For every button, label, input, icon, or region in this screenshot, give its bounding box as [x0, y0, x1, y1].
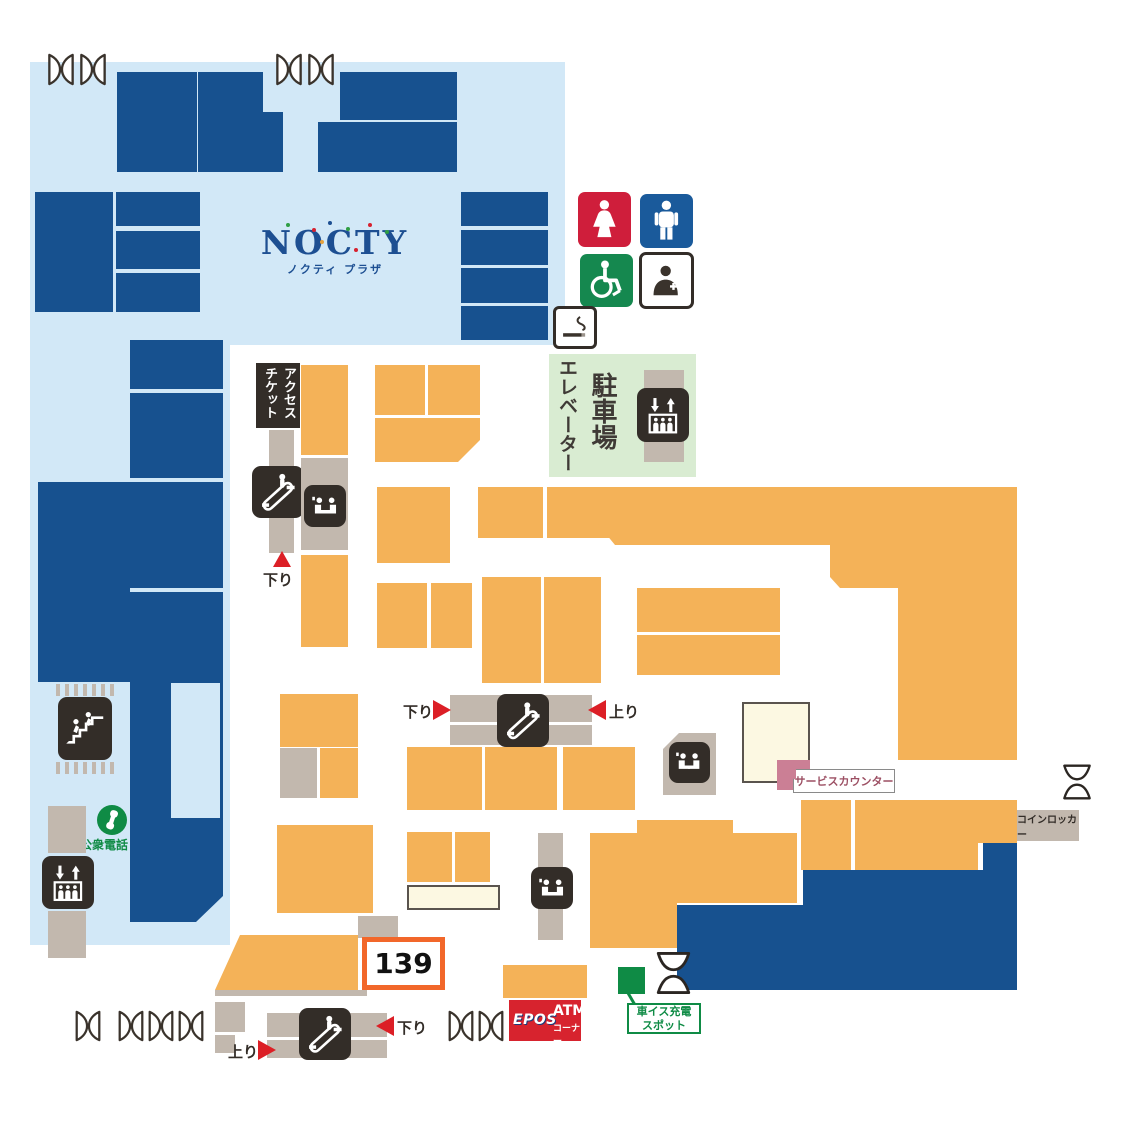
service-counter-tag: サービスカウンター [793, 769, 895, 793]
atm-label: ATM [553, 1003, 586, 1019]
door-icon [655, 950, 692, 996]
wheelchair-charging-tag: 車イス充電 スポット [627, 1003, 701, 1034]
wheelchair-charging-marker [618, 967, 645, 994]
up-direction-arrow [588, 700, 606, 720]
wheelchair-charging-label-1: 車イス充電 [629, 1005, 699, 1019]
shop-block[interactable] [301, 555, 348, 647]
elevator-shaft [48, 806, 86, 853]
shop-block[interactable] [478, 487, 543, 538]
shop-block[interactable] [428, 365, 480, 415]
stairs-landing-hatch [56, 762, 114, 774]
shop-block[interactable] [801, 800, 851, 870]
parking-elevator-area: エレベーター 駐車場 [549, 354, 696, 477]
shop-block[interactable] [377, 583, 427, 648]
shop-block[interactable] [377, 487, 450, 563]
shop-block[interactable] [320, 748, 358, 798]
escalator-up-label: 上り [609, 701, 639, 722]
shop-block[interactable] [637, 588, 780, 632]
service-counter-block [407, 885, 500, 910]
shop-block[interactable] [116, 192, 200, 226]
shop-block[interactable] [461, 306, 548, 340]
shop-block[interactable] [485, 747, 557, 810]
logo-subtitle: ノクティ プラザ [250, 261, 420, 277]
misc-gray-strip [215, 990, 367, 996]
parking-elevator-icon [637, 388, 689, 442]
epos-logo: EPOS [513, 1012, 557, 1028]
service-block [280, 748, 317, 798]
access-ticket-sign: アクセスチケット [256, 363, 300, 428]
access-ticket-label: アクセスチケット [259, 367, 297, 425]
shop-block[interactable] [280, 694, 358, 747]
logo-dot [385, 230, 389, 234]
escalator-down-label: 下り [403, 701, 433, 722]
shop-block[interactable] [563, 747, 635, 810]
accessible-restroom-icon [580, 254, 633, 307]
shop-block[interactable] [130, 340, 223, 389]
logo-dot [328, 221, 332, 225]
logo-dot [320, 240, 324, 244]
shop-block[interactable] [375, 418, 480, 462]
shop-block[interactable] [116, 231, 200, 269]
shop-block[interactable] [215, 935, 358, 990]
shop-block[interactable] [544, 577, 601, 683]
escalator-up-label: 上り [228, 1041, 258, 1062]
public-phone-label: 公衆電話 [80, 836, 128, 853]
elevator-shaft [48, 911, 86, 958]
shop-block[interactable] [407, 747, 482, 810]
shop-block[interactable] [318, 122, 457, 172]
shop-block[interactable] [35, 192, 113, 312]
shop-block[interactable] [375, 365, 425, 415]
down-direction-arrow [376, 1016, 394, 1036]
shop-block[interactable] [340, 72, 457, 120]
store-139-number: 139 [374, 947, 432, 980]
shop-block[interactable] [301, 365, 348, 455]
entrance-door-icon [73, 1010, 103, 1042]
misc-gray-block [215, 1002, 245, 1032]
logo-dot [368, 223, 372, 227]
down-direction-arrow [433, 700, 451, 720]
logo-dot [312, 228, 316, 232]
shop-block[interactable] [407, 832, 452, 882]
logo-dot [286, 223, 290, 227]
shop-block[interactable] [117, 72, 197, 172]
shop-block[interactable] [503, 965, 587, 998]
logo-dot [346, 227, 350, 231]
escalator-down-label: 下り [263, 569, 293, 590]
entrance-door-icon [446, 1010, 506, 1042]
shop-block[interactable] [461, 230, 548, 265]
shop-block[interactable] [455, 832, 490, 882]
door-icon [1060, 763, 1094, 801]
shop-block[interactable] [461, 192, 548, 226]
public-phone-icon [97, 805, 127, 835]
wheelchair-charging-label-2: スポット [629, 1019, 699, 1033]
rest-area-icon [531, 867, 573, 909]
rest-area-icon [669, 742, 710, 783]
shop-block[interactable] [482, 577, 541, 683]
shop-block[interactable] [277, 825, 373, 913]
shop-block[interactable] [116, 273, 200, 312]
smoking-area-icon [553, 306, 597, 349]
atm-corner: EPOS ATM コーナー [509, 1000, 581, 1041]
store-139[interactable]: 139 [362, 937, 445, 990]
entrance-door-icon [273, 53, 337, 86]
shop-block[interactable] [637, 635, 780, 675]
first-aid-room-icon [639, 252, 694, 309]
shop-block[interactable] [898, 487, 1017, 760]
up-direction-arrow [258, 1040, 276, 1060]
corridor-notch [171, 683, 220, 818]
nocty-logo: NOCTY ノクティ プラザ [250, 226, 420, 284]
shop-block[interactable] [130, 393, 223, 478]
shop-block[interactable] [431, 583, 472, 648]
shop-block[interactable] [461, 268, 548, 303]
elevator-icon [42, 856, 94, 909]
atm-sub-label: コーナー [553, 1021, 581, 1047]
stairs-landing-hatch [56, 684, 114, 696]
coin-locker-label: コインロッカー [1017, 811, 1079, 841]
parking-elevator-label-1: 駐車場 [589, 372, 615, 472]
floor-map: NOCTY ノクティ プラザ エレベーター 駐車場 アクセスチケット [0, 0, 1124, 1125]
escalator-icon [497, 694, 549, 747]
logo-dot [354, 248, 358, 252]
womens-restroom-icon [578, 192, 631, 247]
entrance-door-icon [116, 1010, 206, 1042]
escalator-icon [299, 1008, 351, 1060]
escalator-down-label: 下り [397, 1017, 427, 1038]
misc-gray-block [358, 916, 398, 938]
shop-block[interactable] [130, 592, 223, 922]
mens-restroom-icon [640, 194, 693, 248]
rest-area-icon [304, 485, 346, 527]
stairs-icon [58, 697, 112, 760]
coin-locker-box: コインロッカー [1017, 810, 1079, 841]
escalator-direction-arrow [273, 551, 291, 567]
shop-block[interactable] [597, 487, 898, 545]
parking-elevator-label-2: エレベーター [557, 358, 576, 476]
service-counter-label: サービスカウンター [795, 773, 894, 789]
service-counter-pointer [782, 766, 796, 780]
logo-title: NOCTY [250, 226, 420, 259]
escalator-icon [252, 466, 304, 518]
entrance-door-icon [45, 53, 109, 86]
